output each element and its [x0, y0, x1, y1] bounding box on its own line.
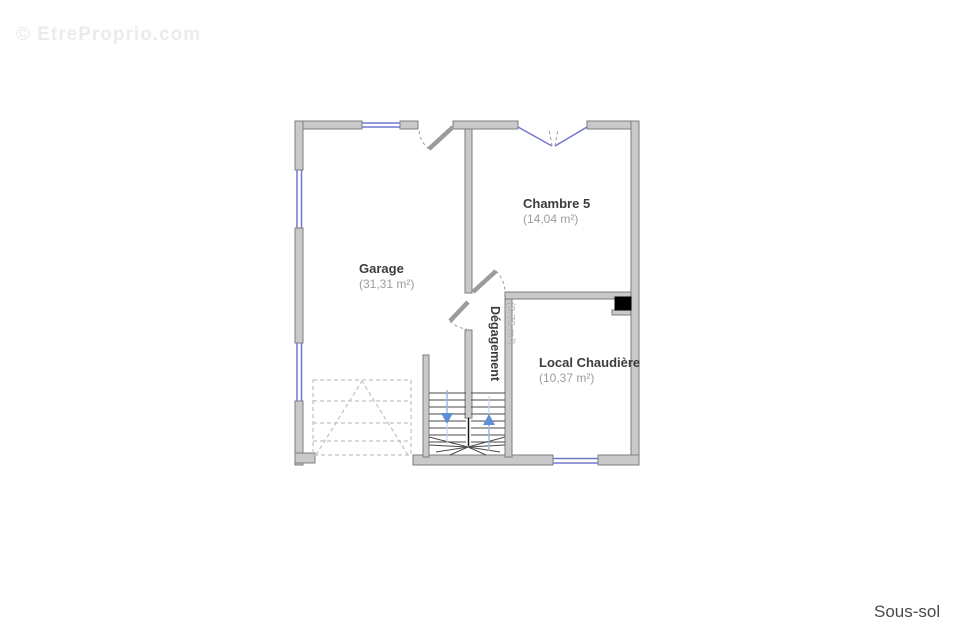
stair-winder-fan [429, 437, 505, 455]
wall-garage-chambre5 [465, 129, 472, 293]
flue-black-square [615, 297, 631, 310]
wall-stair-left [423, 355, 429, 457]
room-area-garage: (31,31 m²) [359, 277, 414, 291]
room-name-garage: Garage [359, 262, 414, 276]
room-name-chaudiere: Local Chaudière [539, 356, 640, 370]
door-garage-entry [419, 127, 453, 149]
room-label-chambre5: Chambre 5 (14,04 m²) [523, 197, 590, 226]
door-chambre5 [473, 271, 505, 292]
wall-chaudiere-top [505, 292, 631, 299]
stair-arrow-down [441, 413, 453, 424]
casement-window-chambre5 [518, 127, 587, 146]
floor-plan-page: © EtreProprio.com [0, 0, 980, 644]
room-name-chambre5: Chambre 5 [523, 197, 590, 211]
room-area-chambre5: (14,04 m²) [523, 212, 590, 226]
room-area-chaudiere: (10,37 m²) [539, 371, 640, 385]
stair-arrow-up [483, 414, 495, 425]
flue-niche-lip [612, 310, 631, 315]
wall-garage-degagement [465, 330, 472, 418]
room-label-chaudiere: Local Chaudière (10,37 m²) [539, 356, 640, 385]
floor-title: Sous-sol [874, 602, 940, 622]
room-name-degagement: Dégagement [488, 306, 502, 381]
room-label-garage: Garage (31,31 m²) [359, 262, 414, 291]
doors [419, 127, 505, 329]
door-degagement [450, 302, 468, 329]
room-area-degagement: (3,76 m²) [505, 302, 517, 345]
interior-walls [423, 129, 631, 457]
garage-door-dashed-outline [313, 380, 411, 455]
